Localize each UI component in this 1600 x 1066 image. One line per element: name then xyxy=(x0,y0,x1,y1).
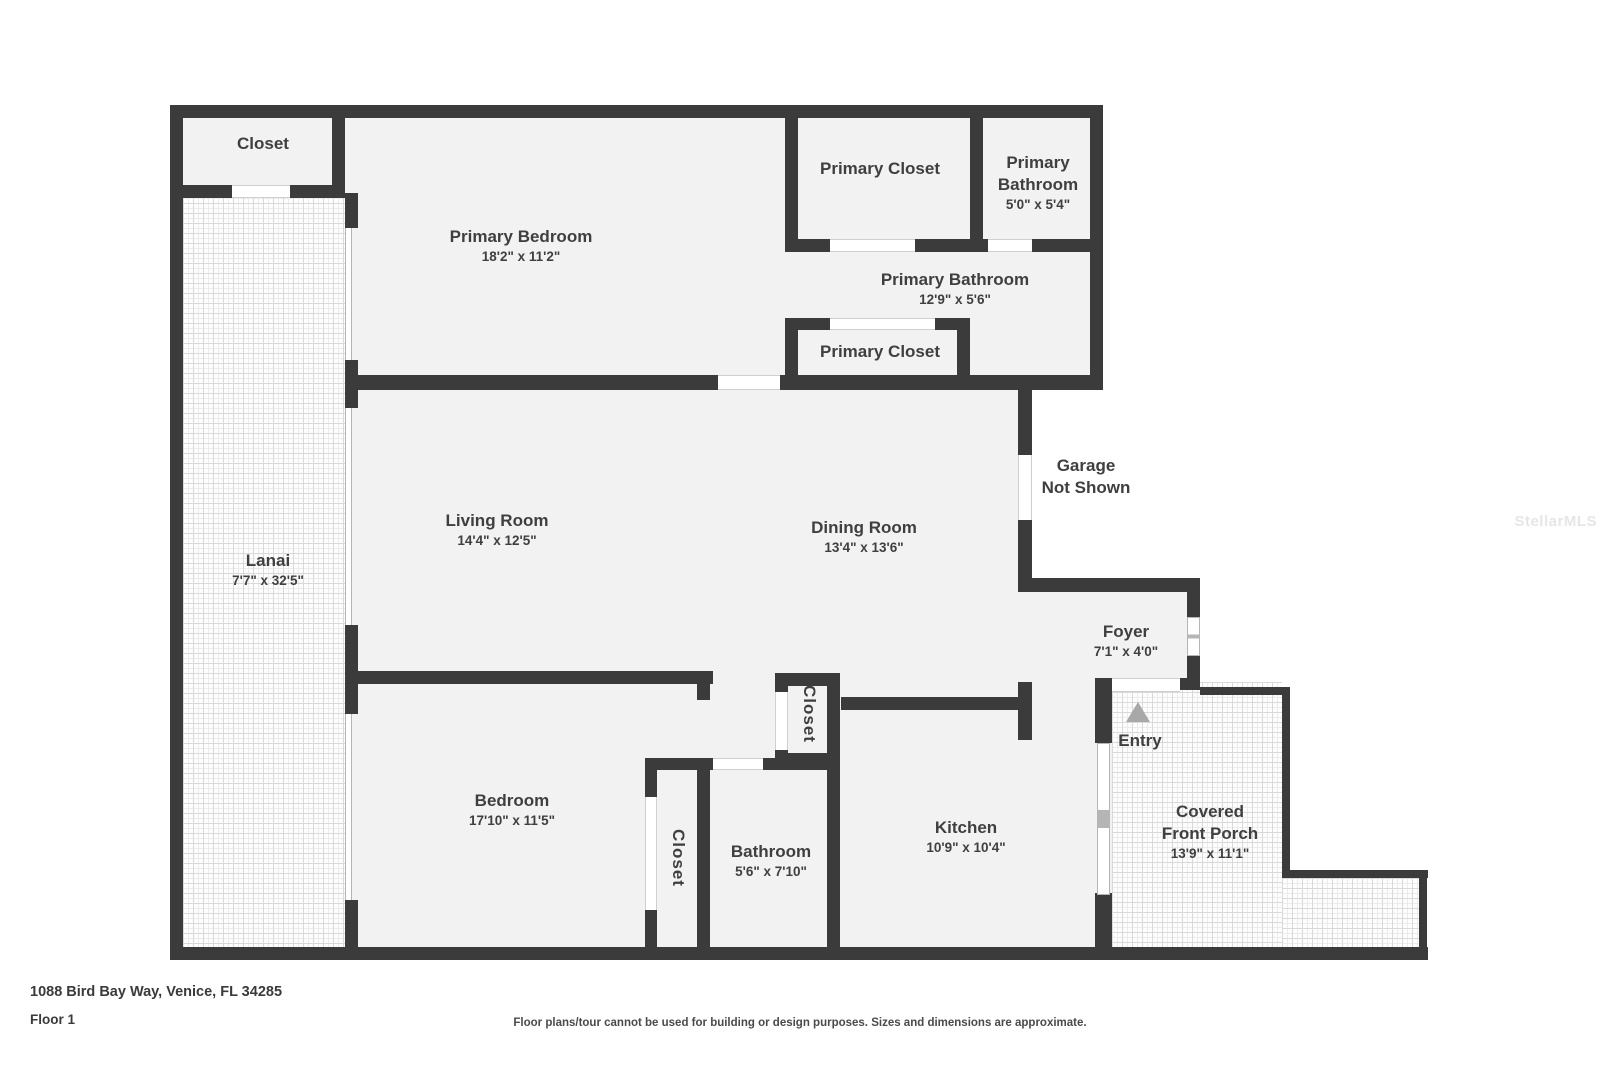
room-label-bedroom: Bedroom 17'10" x 11'5" xyxy=(469,790,555,830)
wall-bathroom-kitchen xyxy=(827,673,840,947)
room-label-hall-closet: Closet xyxy=(798,685,820,743)
door-garage xyxy=(1018,455,1032,520)
wall-kitchen-cap xyxy=(1018,682,1032,740)
room-label-primary-closet-top: Primary Closet xyxy=(820,158,940,180)
room-label-closet-top-left: Closet xyxy=(237,133,289,155)
window-lanai-living-room xyxy=(345,408,352,625)
door-bathroom xyxy=(713,758,763,770)
wall-closet-tl-right xyxy=(332,105,345,193)
wall-bedroom-east-stub xyxy=(697,671,710,700)
watermark: StellarMLS xyxy=(1514,513,1597,530)
door-primary-closet2 xyxy=(830,318,935,330)
wall-porch-left-lower xyxy=(1095,893,1112,947)
wall-exterior-bottom xyxy=(170,947,1428,960)
wall-lanai-stub-1 xyxy=(345,193,358,228)
wall-porch-right xyxy=(1282,687,1290,878)
door-primary-bedroom xyxy=(718,375,780,390)
room-label-garage: Garage Not Shown xyxy=(1042,455,1131,499)
window-lanai-primary-bedroom xyxy=(345,228,352,360)
wall-porch-right-lower xyxy=(1419,878,1427,954)
room-label-living-room: Living Room 14'4" x 12'5" xyxy=(446,510,549,550)
door-hall-closet xyxy=(775,692,788,750)
floor-living-dining xyxy=(345,390,1018,588)
wall-closet-tl-bottom-left xyxy=(182,185,232,198)
floor-plan: Closet Primary Bedroom 18'2" x 11'2" Pri… xyxy=(0,0,1600,1066)
wall-primary-closet-bath-divider xyxy=(970,105,983,247)
wall-exterior-left xyxy=(170,105,183,960)
door-primary-closet-top xyxy=(830,239,915,252)
room-label-kitchen: Kitchen 10'9" x 10'4" xyxy=(926,817,1005,857)
address-text: 1088 Bird Bay Way, Venice, FL 34285 xyxy=(30,984,282,1000)
wall-exterior-top xyxy=(170,105,1103,118)
floor-closet-top-left xyxy=(182,118,345,193)
room-label-lanai: Lanai 7'7" x 32'5" xyxy=(232,550,304,590)
wall-porch-left-upper xyxy=(1095,678,1112,743)
room-label-primary-closet-2: Primary Closet xyxy=(820,341,940,363)
room-label-foyer: Foyer 7'1" x 4'0" xyxy=(1094,621,1158,661)
window-kitchen-porch xyxy=(1097,743,1110,895)
wall-bedroom-top xyxy=(345,671,713,684)
window-foyer xyxy=(1187,617,1200,656)
window-lanai-bedroom xyxy=(345,714,352,900)
room-label-primary-bedroom: Primary Bedroom 18'2" x 11'2" xyxy=(450,226,593,266)
wall-porch-step xyxy=(1282,870,1428,878)
room-label-covered-front-porch: Covered Front Porch 13'9" x 11'1" xyxy=(1162,801,1258,863)
wall-lanai-stub-4 xyxy=(345,900,358,947)
wall-porch-top xyxy=(1200,687,1282,695)
wall-primary-closet-left xyxy=(785,105,798,247)
room-label-bedroom-closet: Closet xyxy=(667,829,689,887)
door-primary-bathroom-small xyxy=(988,239,1032,252)
room-label-primary-bathroom-small: Primary Bathroom 5'0" x 5'4" xyxy=(998,152,1078,214)
wall-bedroom-east xyxy=(697,758,710,947)
room-label-entry: Entry xyxy=(1118,730,1161,752)
wall-primary-closet2-right xyxy=(957,318,970,378)
disclaimer-text: Floor plans/tour cannot be used for buil… xyxy=(0,1017,1600,1029)
door-bedroom-closet xyxy=(645,797,657,910)
door-closet-top-left xyxy=(232,185,290,198)
room-label-dining-room: Dining Room 13'4" x 13'6" xyxy=(811,517,917,557)
wall-lanai-stub-3 xyxy=(345,625,358,714)
wall-kitchen-top xyxy=(841,697,1018,710)
wall-foyer-top xyxy=(1018,578,1200,592)
entry-door-opening xyxy=(1112,678,1180,692)
porch-tile-floor-extension xyxy=(1282,878,1420,947)
wall-closet-tl-bottom-right xyxy=(290,185,345,198)
wall-foyer-bottom-corner xyxy=(1180,678,1200,690)
room-label-bathroom: Bathroom 5'6" x 7'10" xyxy=(731,841,811,881)
entry-arrow-icon xyxy=(1126,702,1150,722)
room-label-primary-bathroom: Primary Bathroom 12'9" x 5'6" xyxy=(881,269,1029,309)
